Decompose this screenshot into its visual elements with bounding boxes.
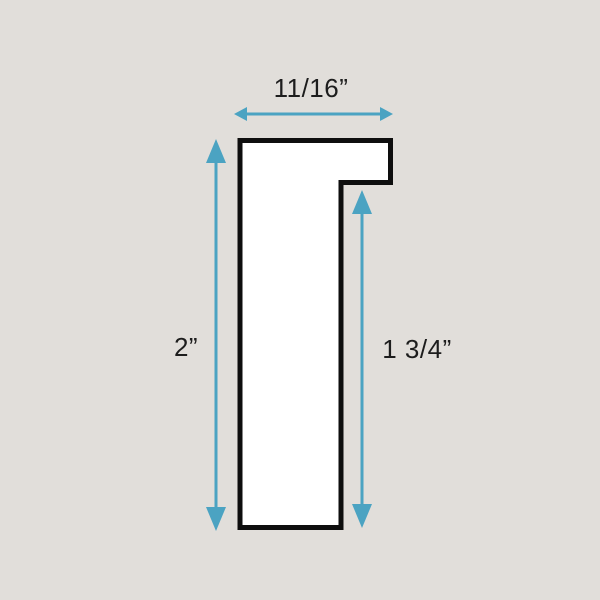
width-dimension-label: 11/16” xyxy=(274,73,349,103)
right-height-dimension-label: 1 3/4” xyxy=(382,334,452,364)
arrow-shaft xyxy=(361,212,364,506)
left-height-dimension-label: 2” xyxy=(174,332,198,362)
profile-diagram: 11/16” 2” 1 3/4” xyxy=(0,0,600,600)
arrow-shaft xyxy=(215,161,218,509)
diagram-canvas: 11/16” 2” 1 3/4” xyxy=(0,0,600,600)
arrow-shaft xyxy=(245,113,382,116)
